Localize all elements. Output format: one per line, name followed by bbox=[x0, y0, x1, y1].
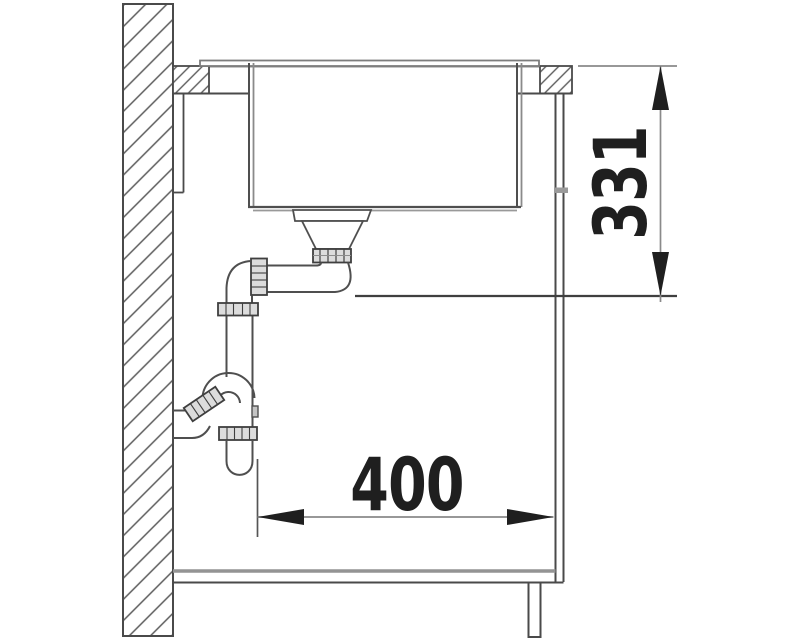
pipe-coupling-nut bbox=[218, 303, 258, 316]
pipe-clip-tab bbox=[252, 406, 258, 417]
drain-strainer bbox=[293, 210, 371, 263]
technical-drawing-canvas: 331 400 bbox=[0, 0, 800, 640]
panel-joint-mark bbox=[554, 188, 568, 194]
sink-rim-flange bbox=[200, 61, 539, 67]
trap-cleanout-nut bbox=[219, 427, 257, 440]
strainer-flange bbox=[293, 210, 371, 221]
downpipe-left-elbow bbox=[227, 261, 252, 303]
cleanout-nut-body bbox=[219, 427, 257, 440]
dimension-label-400: 400 bbox=[323, 441, 490, 531]
cabinet bbox=[173, 94, 568, 638]
coupling-nut-body bbox=[218, 303, 258, 316]
worktop-left-section bbox=[173, 66, 209, 94]
trap-u-bend bbox=[227, 440, 253, 475]
dimension-label-331: 331 bbox=[577, 99, 667, 266]
strainer-body bbox=[302, 221, 363, 249]
cabinet-plinth bbox=[528, 583, 542, 637]
tailpipe-elbow bbox=[267, 263, 351, 293]
sink-rim bbox=[200, 61, 539, 67]
sink-section-drawing bbox=[0, 0, 800, 640]
siphon-trap bbox=[173, 373, 258, 475]
wall-outlet-pipe-bottom bbox=[173, 426, 210, 438]
dim-arrow-right bbox=[507, 509, 554, 525]
sink-bowl bbox=[248, 63, 522, 211]
worktop bbox=[173, 66, 572, 94]
union-nut-body bbox=[251, 259, 267, 296]
wall-hatching bbox=[123, 4, 173, 636]
pipe-union-nut bbox=[251, 259, 267, 296]
wall bbox=[123, 4, 173, 636]
wall-mounting-rail bbox=[173, 94, 184, 193]
dim-arrow-left bbox=[258, 509, 305, 525]
worktop-right-section bbox=[540, 66, 572, 94]
pipe-bottom-line bbox=[267, 263, 351, 293]
